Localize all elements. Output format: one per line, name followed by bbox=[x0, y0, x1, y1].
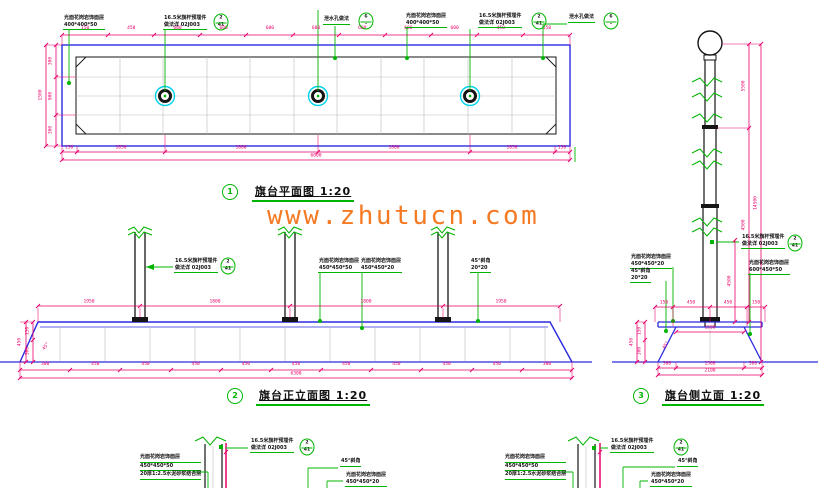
callout-pole-embed: 16.5米旗杆预埋件 做法详 02J003 bbox=[741, 234, 785, 249]
callout-granite-finish: 光面花岗岩饰面层 450*450*50 bbox=[318, 258, 360, 273]
detail-ref-bubble: 2 41 bbox=[674, 439, 689, 456]
ref-number: 2 bbox=[301, 440, 314, 447]
callout-line: 做法详 02J003 bbox=[251, 445, 293, 452]
callout-bevel: 45°斜角 20*20 bbox=[630, 268, 651, 283]
callout-pole-embed: 16.5米旗杆预埋件 做法详 02J003 bbox=[250, 438, 294, 453]
callout-line: 光面花岗岩饰面层 bbox=[406, 13, 446, 20]
callout-line: 16.5米旗杆预埋件 bbox=[611, 438, 653, 445]
dim-value: 150 bbox=[65, 147, 73, 152]
dim-value: 450 bbox=[687, 302, 695, 307]
callout-line: 泄水孔做法 bbox=[569, 14, 594, 21]
title-scale: 1:20 bbox=[336, 389, 367, 402]
dim-value: 1050 bbox=[506, 147, 517, 152]
dim-value: 5500 bbox=[743, 80, 748, 91]
callout-line: 450*450*20 bbox=[651, 479, 691, 486]
cad-linework bbox=[0, 0, 818, 488]
dim-value: 450 bbox=[472, 363, 522, 368]
note-line: 20厚1:2.5水泥砂浆结合层 bbox=[505, 471, 566, 480]
dim-value: 900 bbox=[50, 92, 55, 100]
ref-number: 2 bbox=[675, 440, 688, 447]
callout-line: 16.5米旗杆预埋件 bbox=[742, 234, 784, 241]
dim-value: 450 bbox=[724, 302, 732, 307]
dim-total: 6000 bbox=[310, 155, 321, 160]
callout-line: 光面花岗岩饰面层 bbox=[631, 254, 671, 261]
dim-value: 150 bbox=[524, 27, 570, 32]
callout-line: 16.5米旗杆预埋件 bbox=[479, 13, 521, 20]
callout-bevel: 45°斜角 bbox=[340, 458, 361, 467]
callout-line: 45°斜角 bbox=[631, 268, 650, 275]
dim-value: 300 bbox=[50, 126, 55, 134]
dim-value: 4500 bbox=[743, 219, 748, 230]
note-paving-layers: 光面花岗岩饰面层 450*450*50 20厚1:2.5水泥砂浆结合层 bbox=[505, 454, 566, 480]
callout-granite-finish: 光面花岗岩饰面层 450*450*20 bbox=[650, 472, 692, 487]
dim-value: 1500 bbox=[704, 327, 715, 332]
view-title-side: 旗台侧立面 1:20 bbox=[662, 387, 764, 406]
dim-value: 4500 bbox=[729, 275, 734, 286]
dim-value: 1950 bbox=[495, 301, 506, 306]
callout-line: 做法详 02J003 bbox=[611, 445, 653, 452]
callout-pole-embed: 16.5米旗杆预埋件 做法详 02J003 bbox=[174, 258, 218, 273]
callout-line: 做法详 02J003 bbox=[175, 265, 217, 272]
ref-number: 2 bbox=[215, 15, 228, 22]
ref-number: 2 bbox=[222, 259, 235, 266]
callout-line: 450*450*20 bbox=[361, 265, 401, 272]
detail-ref-bubble: 6 – bbox=[604, 13, 619, 30]
dim-value: 300 bbox=[20, 363, 70, 368]
callout-line: 20*20 bbox=[631, 275, 650, 282]
detail-ref-bubble: 2 41 bbox=[300, 439, 315, 456]
callout-line: 45°斜角 bbox=[341, 458, 360, 465]
view-title-front: 旗台正立面图 1:20 bbox=[256, 387, 370, 406]
ref-sheet: 41 bbox=[675, 447, 688, 454]
callout-line: 400*400*50 bbox=[64, 22, 104, 29]
dim-value: 1800 bbox=[360, 301, 371, 306]
dim-total: 2100 bbox=[704, 370, 715, 375]
detail-ref-bubble: 2 41 bbox=[221, 258, 236, 275]
dim-value: 450 bbox=[371, 363, 421, 368]
title-scale: 1:20 bbox=[730, 389, 761, 402]
dim-total: 450 bbox=[631, 338, 636, 346]
dim-value: 300 bbox=[27, 347, 32, 355]
callout-line: 泄水孔做法 bbox=[324, 16, 349, 23]
view-number-side: 3 bbox=[633, 388, 649, 404]
ref-sheet: 41 bbox=[222, 266, 235, 273]
drawing-canvas: 150 450 600 600 600 600 600 600 600 450 … bbox=[0, 0, 818, 488]
dim-value: 450 bbox=[120, 363, 170, 368]
watermark-text: www.zhutucn.com bbox=[267, 202, 539, 231]
dim-value: 600 bbox=[247, 27, 293, 32]
callout-drain: 泄水孔做法 bbox=[568, 14, 595, 23]
ref-sheet: – bbox=[605, 21, 618, 28]
detail-ref-bubble: 2 41 bbox=[214, 14, 229, 31]
callout-granite-finish: 光面花岗岩饰面层 450*450*20 bbox=[345, 472, 387, 487]
dim-value: 1500 bbox=[40, 89, 45, 100]
note-line: 450*450*50 bbox=[505, 463, 566, 472]
detail-ref-bubble: 2 41 bbox=[788, 235, 803, 252]
ref-number: 2 bbox=[533, 14, 546, 21]
ref-number: 2 bbox=[789, 236, 802, 243]
callout-pole-embed: 16.5米旗杆预埋件 做法详 02J003 bbox=[478, 13, 522, 28]
dim-value: 300 bbox=[749, 363, 757, 368]
callout-line: 光面花岗岩饰面层 bbox=[749, 260, 789, 267]
callout-line: 400*400*50 bbox=[406, 20, 446, 27]
dim-total: 14500 bbox=[755, 196, 760, 210]
view-title-plan: 旗台平面图 1:20 bbox=[252, 183, 354, 202]
callout-line: 450*450*20 bbox=[346, 479, 386, 486]
detail-ref-bubble: 6 – bbox=[359, 13, 374, 30]
title-text: 旗台侧立面 bbox=[665, 389, 725, 402]
callout-line: 光面花岗岩饰面层 bbox=[651, 472, 691, 479]
callout-drain: 泄水孔做法 bbox=[323, 16, 350, 25]
title-scale: 1:20 bbox=[320, 185, 351, 198]
dim-value: 300 bbox=[639, 347, 644, 355]
callout-line: 光面花岗岩饰面层 bbox=[319, 258, 359, 265]
ref-sheet: 41 bbox=[215, 22, 228, 29]
ref-sheet: 41 bbox=[533, 21, 546, 28]
ref-sheet: 41 bbox=[301, 447, 314, 454]
callout-line: 做法详 02J003 bbox=[479, 20, 521, 27]
dim-value: 1800 bbox=[388, 147, 399, 152]
ref-number: 6 bbox=[360, 14, 373, 21]
detail-ref-bubble: 2 41 bbox=[532, 13, 547, 30]
callout-line: 16.5米旗杆预埋件 bbox=[251, 438, 293, 445]
dim-value: 1950 bbox=[83, 301, 94, 306]
callout-line: 做法详 02J003 bbox=[742, 241, 784, 248]
front-bottom-dimensions: 300 450 450 450 450 450 450 450 450 450 … bbox=[20, 363, 572, 368]
callout-granite-finish: 光面花岗岩饰面层 600*450*50 bbox=[748, 260, 790, 275]
callout-line: 450*450*20 bbox=[631, 261, 671, 268]
dim-value: 450 bbox=[70, 363, 120, 368]
ref-number: 6 bbox=[605, 14, 618, 21]
title-text: 旗台平面图 bbox=[255, 185, 315, 198]
view-number-front: 2 bbox=[227, 388, 243, 404]
callout-line: 光面花岗岩饰面层 bbox=[361, 258, 401, 265]
dim-total: 450 bbox=[19, 338, 24, 346]
plan-linework bbox=[44, 10, 575, 162]
ref-sheet: – bbox=[360, 21, 373, 28]
dim-value: 300 bbox=[522, 363, 572, 368]
callout-line: 16.5米旗杆预埋件 bbox=[175, 258, 217, 265]
note-line: 450*450*50 bbox=[140, 463, 201, 472]
dim-value: 1500 bbox=[704, 363, 715, 368]
callout-pole-embed: 16.5米旗杆预埋件 做法详 02J003 bbox=[163, 15, 207, 30]
dim-value: 1800 bbox=[209, 301, 220, 306]
callout-line: 做法详 02J003 bbox=[164, 22, 206, 29]
dim-value: 450 bbox=[422, 363, 472, 368]
callout-line: 光面花岗岩饰面层 bbox=[346, 472, 386, 479]
note-line: 20厚1:2.5水泥砂浆结合层 bbox=[140, 471, 201, 480]
dim-value: 1800 bbox=[235, 147, 246, 152]
note-line: 光面花岗岩饰面层 bbox=[140, 454, 201, 463]
callout-line: 光面花岗岩饰面层 bbox=[64, 15, 104, 22]
dim-value: 450 bbox=[321, 363, 371, 368]
callout-granite-finish: 光面花岗岩饰面层 400*400*50 bbox=[63, 15, 105, 30]
note-line: 光面花岗岩饰面层 bbox=[505, 454, 566, 463]
callout-pole-embed: 16.5米旗杆预埋件 做法详 02J003 bbox=[610, 438, 654, 453]
dim-value: 450 bbox=[108, 27, 154, 32]
callout-line: 45°斜角 bbox=[471, 258, 490, 265]
callout-bevel: 45°斜角 20*20 bbox=[470, 258, 491, 273]
callout-granite-finish: 光面花岗岩饰面层 450*450*20 bbox=[630, 254, 672, 269]
callout-granite-finish: 光面花岗岩饰面层 400*400*50 bbox=[405, 13, 447, 28]
ref-sheet: 41 bbox=[789, 243, 802, 250]
callout-line: 16.5米旗杆预埋件 bbox=[164, 15, 206, 22]
callout-line: 600*450*50 bbox=[749, 267, 789, 274]
dim-value: 150 bbox=[27, 327, 32, 335]
dim-value: 150 bbox=[639, 327, 644, 335]
dim-value: 150 bbox=[660, 302, 668, 307]
title-text: 旗台正立面图 bbox=[259, 389, 331, 402]
callout-line: 45°斜角 bbox=[678, 458, 697, 465]
callout-line: 450*450*50 bbox=[319, 265, 359, 272]
dim-value: 150 bbox=[752, 302, 760, 307]
callout-granite-finish: 光面花岗岩饰面层 450*450*20 bbox=[360, 258, 402, 273]
dim-value: 450 bbox=[171, 363, 221, 368]
dim-value: 600 bbox=[293, 27, 339, 32]
dim-total: 6300 bbox=[290, 373, 301, 378]
dim-value: 150 bbox=[558, 147, 566, 152]
dim-value: 300 bbox=[663, 363, 671, 368]
dim-value: 450 bbox=[271, 363, 321, 368]
dim-value: 450 bbox=[221, 363, 271, 368]
view-number-plan: 1 bbox=[222, 184, 238, 200]
dim-value: 300 bbox=[50, 57, 55, 65]
note-paving-layers: 光面花岗岩饰面层 450*450*50 20厚1:2.5水泥砂浆结合层 bbox=[140, 454, 201, 480]
callout-bevel: 45°斜角 bbox=[677, 458, 698, 467]
callout-line: 20*20 bbox=[471, 265, 490, 272]
dim-value: 1050 bbox=[115, 147, 126, 152]
